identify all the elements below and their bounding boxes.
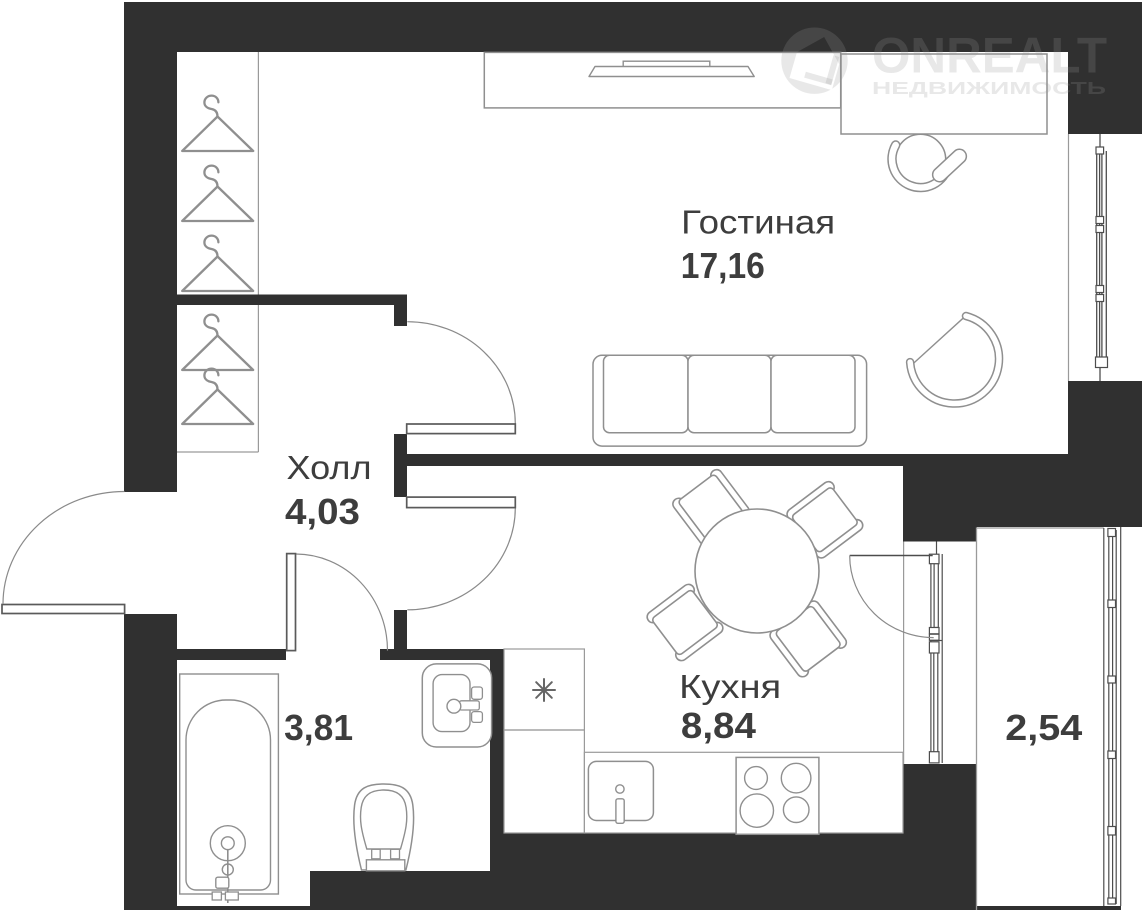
svg-text:Кухня: Кухня: [679, 668, 781, 705]
svg-text:3,81: 3,81: [284, 707, 353, 748]
svg-text:НЕДВИЖИМОСТЬ: НЕДВИЖИМОСТЬ: [872, 78, 1106, 98]
svg-text:17,16: 17,16: [681, 245, 765, 286]
svg-text:Гостиная: Гостиная: [681, 204, 835, 241]
svg-text:8,84: 8,84: [681, 705, 756, 746]
svg-text:ONREALT: ONREALT: [872, 28, 1107, 84]
svg-text:4,03: 4,03: [285, 491, 360, 532]
svg-text:2,54: 2,54: [1005, 707, 1082, 748]
svg-text:Холл: Холл: [287, 449, 372, 486]
